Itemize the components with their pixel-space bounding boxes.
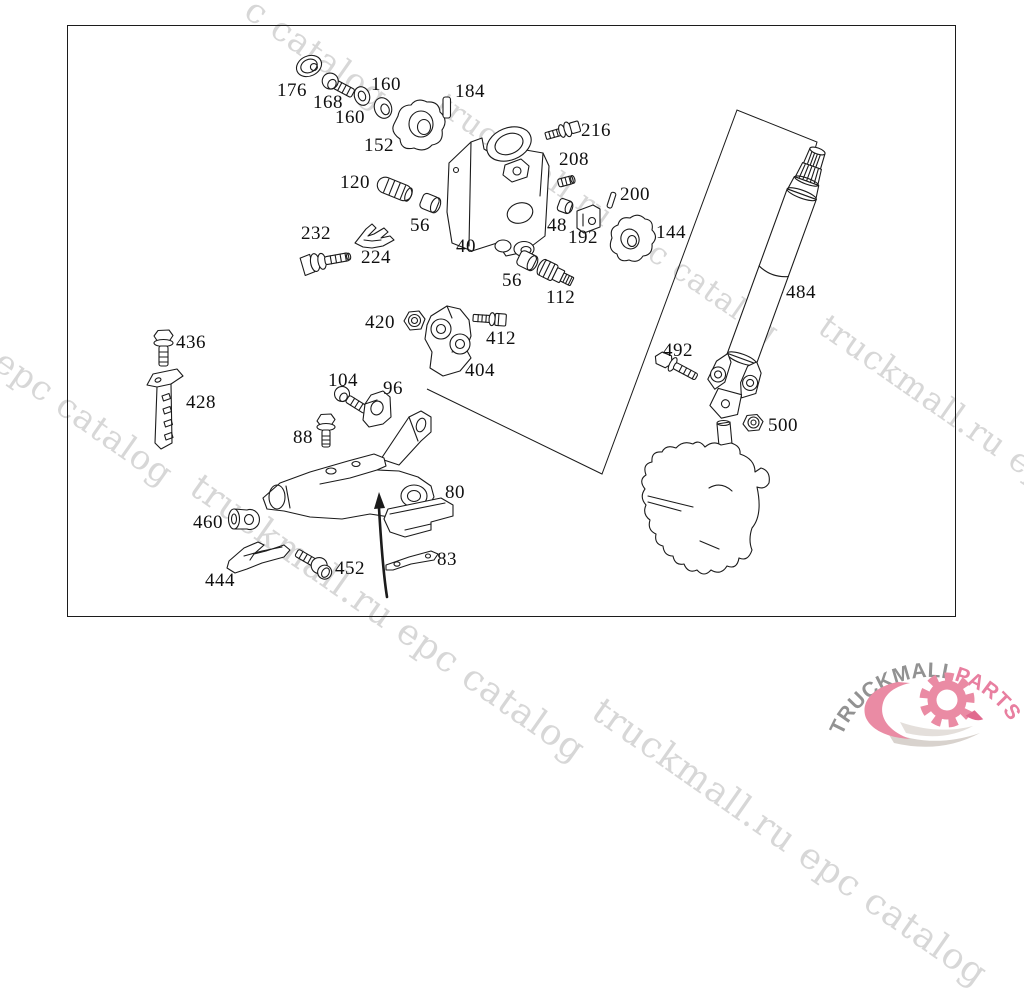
part-drawing-452: [292, 546, 337, 582]
brand-text: TRUCKMALLPARTS: [826, 659, 1024, 738]
part-drawing-232: [300, 247, 353, 275]
part-drawing-120: [375, 175, 414, 203]
brand-text-left: TRUCKMALL: [826, 659, 958, 738]
part-drawing-420: [404, 311, 425, 330]
part-drawing-80: [263, 411, 453, 597]
part-drawing-176: [293, 51, 325, 80]
part-drawing-184: [443, 97, 451, 118]
part-drawing-40: [447, 121, 549, 257]
part-drawing-144: [610, 215, 655, 261]
part-drawing-216: [544, 119, 582, 143]
part-drawing-96: [363, 391, 391, 427]
part-drawing-224: [355, 224, 394, 248]
part-drawing-484: [697, 140, 842, 427]
part-drawing-412: [473, 311, 507, 326]
part-drawing-192: [577, 205, 600, 233]
part-drawing-436: [154, 330, 173, 366]
part-drawing-404: [425, 306, 471, 376]
part-drawing-208: [557, 175, 575, 187]
part-drawing-168: [319, 70, 357, 100]
parts-line-art: TRUCKMALLPARTS: [0, 0, 1024, 750]
part-drawing-48: [556, 198, 574, 215]
part-drawing-88: [317, 414, 335, 447]
part-drawing-460: [229, 509, 260, 530]
part-drawing-56a: [419, 192, 443, 214]
part-drawing-112: [535, 258, 576, 289]
part-drawing-83: [386, 551, 438, 570]
part-drawing-gearbox: [642, 421, 770, 575]
part-drawing-500: [743, 415, 763, 432]
part-drawing-428: [147, 369, 183, 449]
part-drawing-160a: [352, 85, 373, 108]
brand-logo: TRUCKMALLPARTS: [826, 659, 1024, 747]
part-drawing-444: [227, 542, 290, 573]
catalog-page: { "watermark": { "color": "#d7d7d7", "an…: [0, 0, 1024, 750]
part-drawing-492: [652, 349, 700, 384]
part-drawing-152: [393, 100, 445, 150]
part-drawing-160b: [371, 95, 394, 121]
part-drawing-200: [607, 192, 617, 209]
